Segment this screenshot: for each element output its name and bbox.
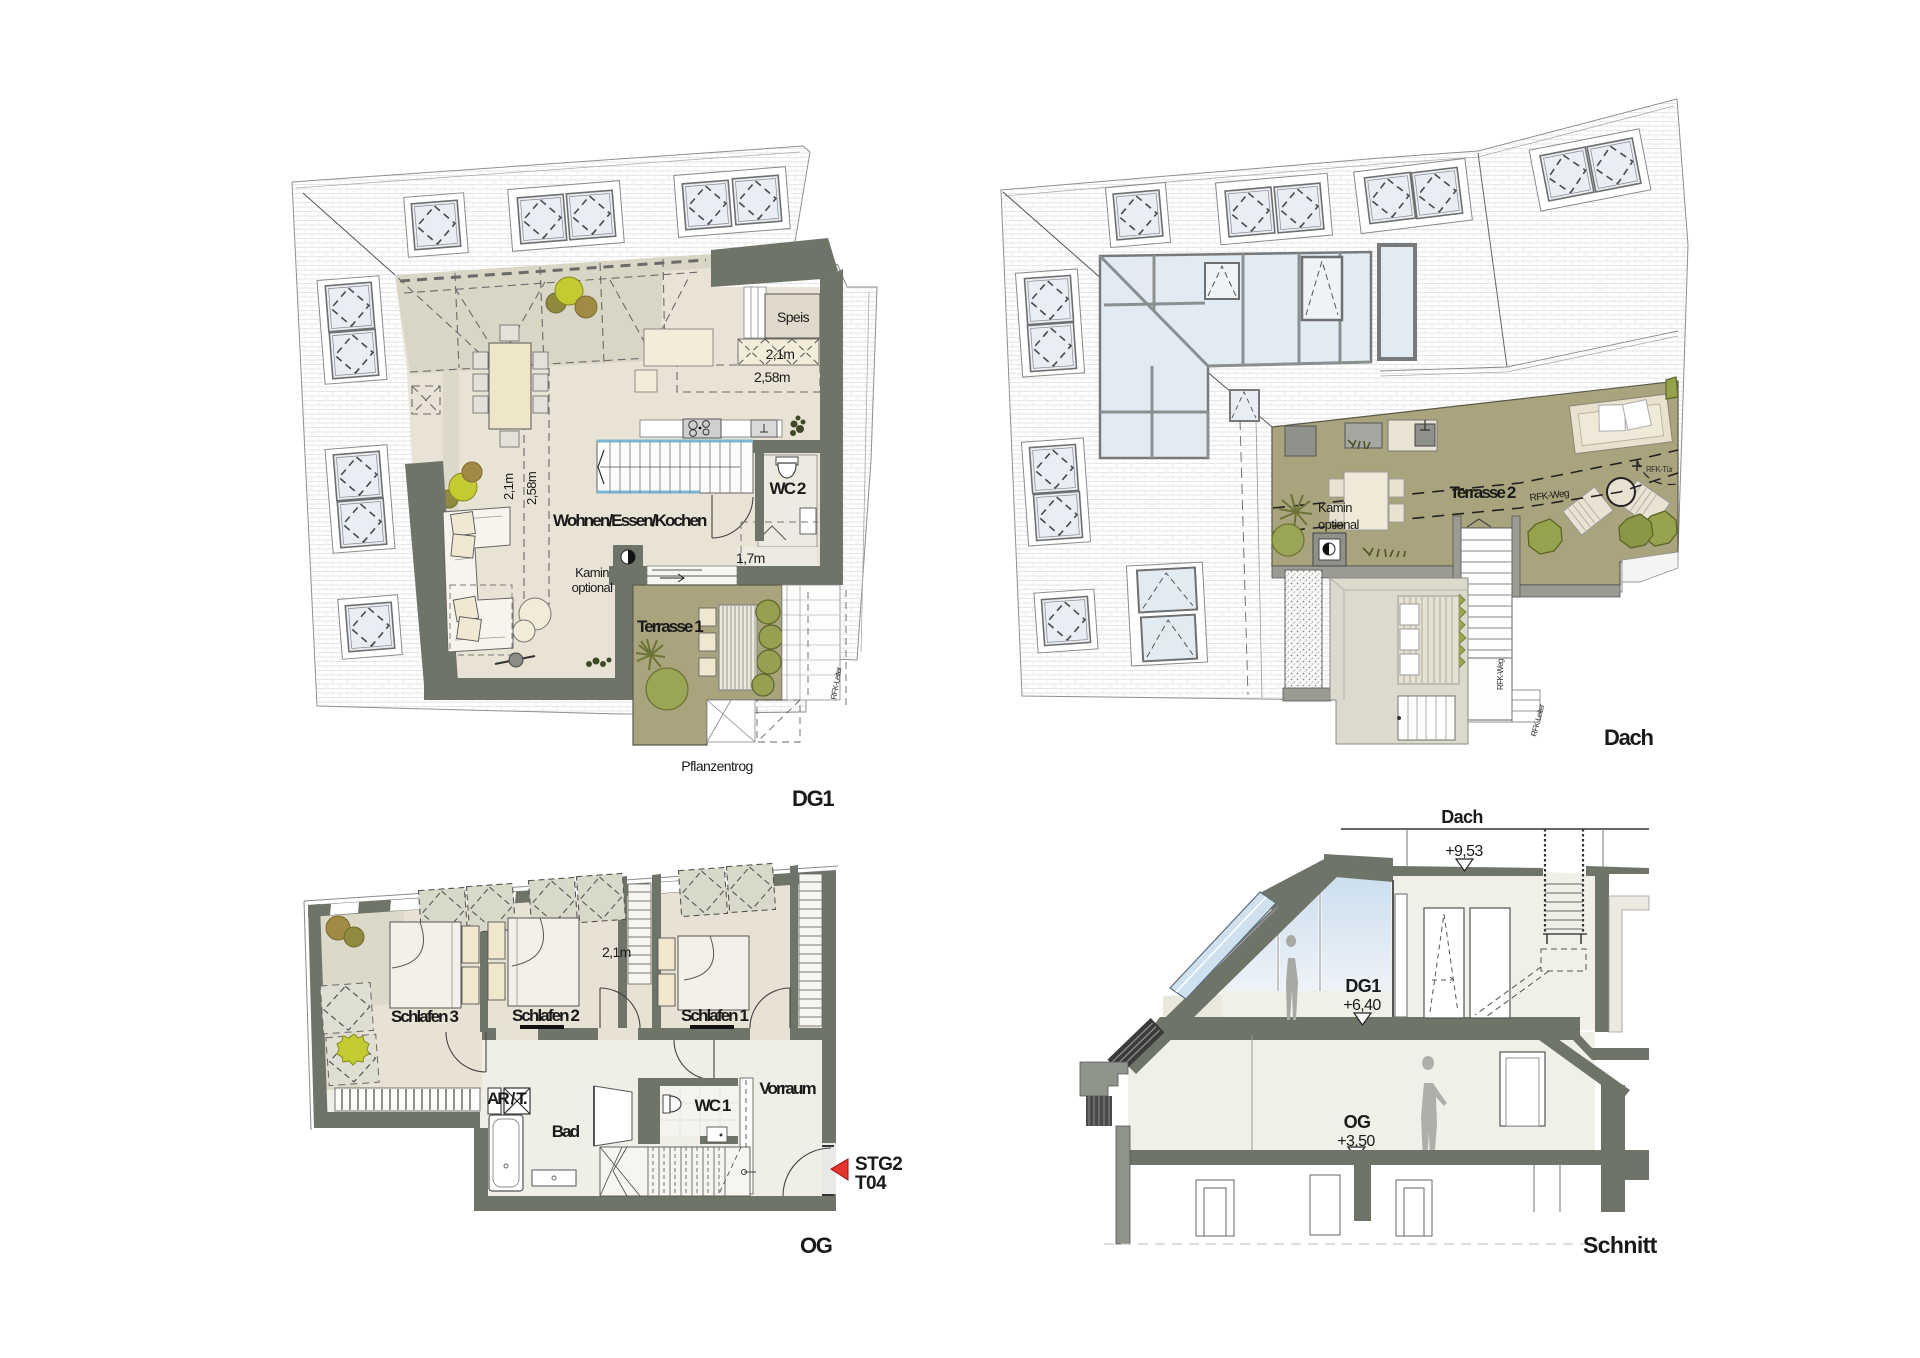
svg-text:Wohnen/Essen/Kochen: Wohnen/Essen/Kochen bbox=[553, 511, 707, 530]
svg-text:+6,40: +6,40 bbox=[1343, 997, 1381, 1014]
svg-text:WC 2: WC 2 bbox=[770, 479, 806, 498]
svg-text:STG2: STG2 bbox=[855, 1154, 902, 1175]
svg-text:2,1m: 2,1m bbox=[766, 346, 795, 362]
svg-text:Dach: Dach bbox=[1604, 725, 1653, 750]
svg-text:2,58m: 2,58m bbox=[524, 472, 539, 505]
svg-text:Terrasse 1: Terrasse 1 bbox=[637, 617, 703, 636]
svg-text:AR / T.: AR / T. bbox=[487, 1089, 527, 1108]
svg-text:Pflanzentrog: Pflanzentrog bbox=[681, 758, 752, 774]
svg-text:2,1m: 2,1m bbox=[602, 944, 631, 960]
svg-text:optional: optional bbox=[572, 580, 613, 595]
svg-text:+9,53: +9,53 bbox=[1445, 843, 1483, 860]
svg-text:OG: OG bbox=[800, 1233, 832, 1258]
svg-text:Kamin: Kamin bbox=[575, 565, 609, 580]
svg-text:2,58m: 2,58m bbox=[754, 369, 790, 385]
svg-text:1,7m: 1,7m bbox=[736, 550, 765, 566]
svg-text:Vorraum: Vorraum bbox=[759, 1079, 816, 1098]
svg-text:Schlafen 3: Schlafen 3 bbox=[391, 1007, 458, 1026]
svg-text:Speis: Speis bbox=[777, 309, 810, 325]
svg-text:DG1: DG1 bbox=[1345, 976, 1381, 996]
svg-text:Schlafen 2: Schlafen 2 bbox=[512, 1006, 579, 1025]
svg-text:T04: T04 bbox=[855, 1173, 887, 1194]
svg-text:Dach: Dach bbox=[1441, 807, 1483, 827]
svg-text:Schnitt: Schnitt bbox=[1583, 1232, 1658, 1258]
svg-text:OG: OG bbox=[1344, 1112, 1371, 1132]
svg-text:DG1: DG1 bbox=[792, 786, 834, 811]
svg-text:RFK-Weg: RFK-Weg bbox=[1496, 659, 1505, 690]
svg-text:optional: optional bbox=[1318, 517, 1359, 532]
svg-text:Bad: Bad bbox=[552, 1122, 580, 1141]
svg-text:WC 1: WC 1 bbox=[695, 1096, 731, 1115]
svg-text:Kamin: Kamin bbox=[1318, 500, 1352, 515]
svg-text:Terrasse 2: Terrasse 2 bbox=[1450, 483, 1516, 502]
svg-text:Schlafen 1: Schlafen 1 bbox=[681, 1006, 748, 1025]
svg-text:2,1m: 2,1m bbox=[501, 473, 516, 500]
svg-text:RFK-Tür: RFK-Tür bbox=[1646, 465, 1673, 474]
